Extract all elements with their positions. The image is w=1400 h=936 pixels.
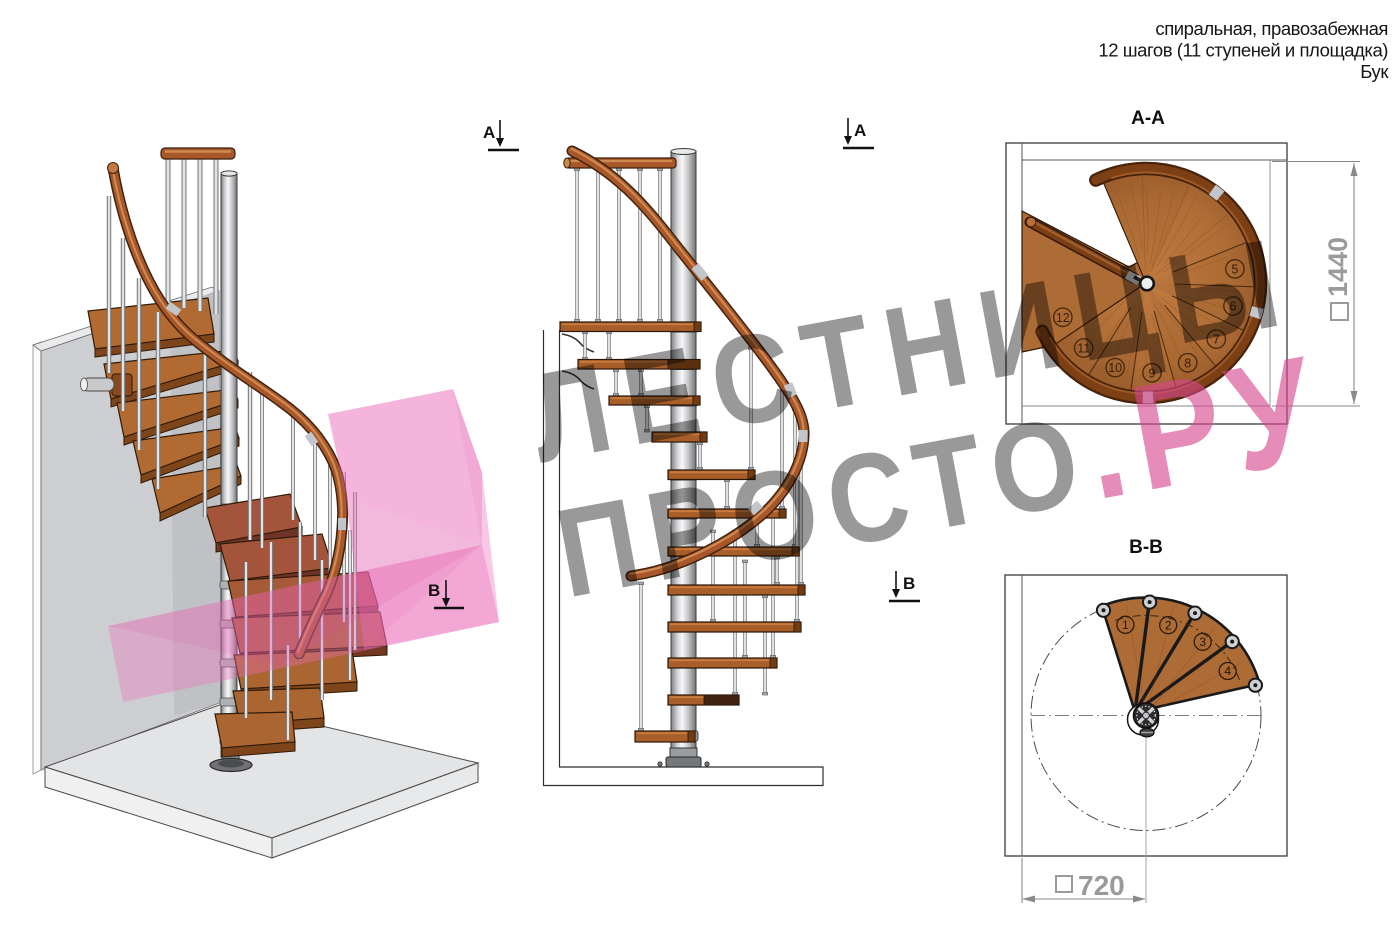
svg-text:А: А [483,123,495,142]
svg-text:720: 720 [1078,870,1125,901]
svg-text:А: А [854,121,866,140]
svg-text:4: 4 [1224,664,1231,678]
svg-text:Бук: Бук [1360,61,1389,82]
svg-text:В: В [428,581,440,600]
svg-text:3: 3 [1199,635,1206,649]
svg-text:12 шагов (11 ступеней и площад: 12 шагов (11 ступеней и площадка) [1098,40,1388,61]
svg-text:спиральная, правозабежная: спиральная, правозабежная [1155,18,1388,39]
svg-text:1440: 1440 [1323,237,1353,297]
svg-text:2: 2 [1165,618,1172,632]
svg-text:А-А: А-А [1131,108,1165,129]
svg-text:1: 1 [1122,618,1129,632]
svg-text:В: В [903,574,915,593]
svg-text:В-В: В-В [1129,537,1163,558]
